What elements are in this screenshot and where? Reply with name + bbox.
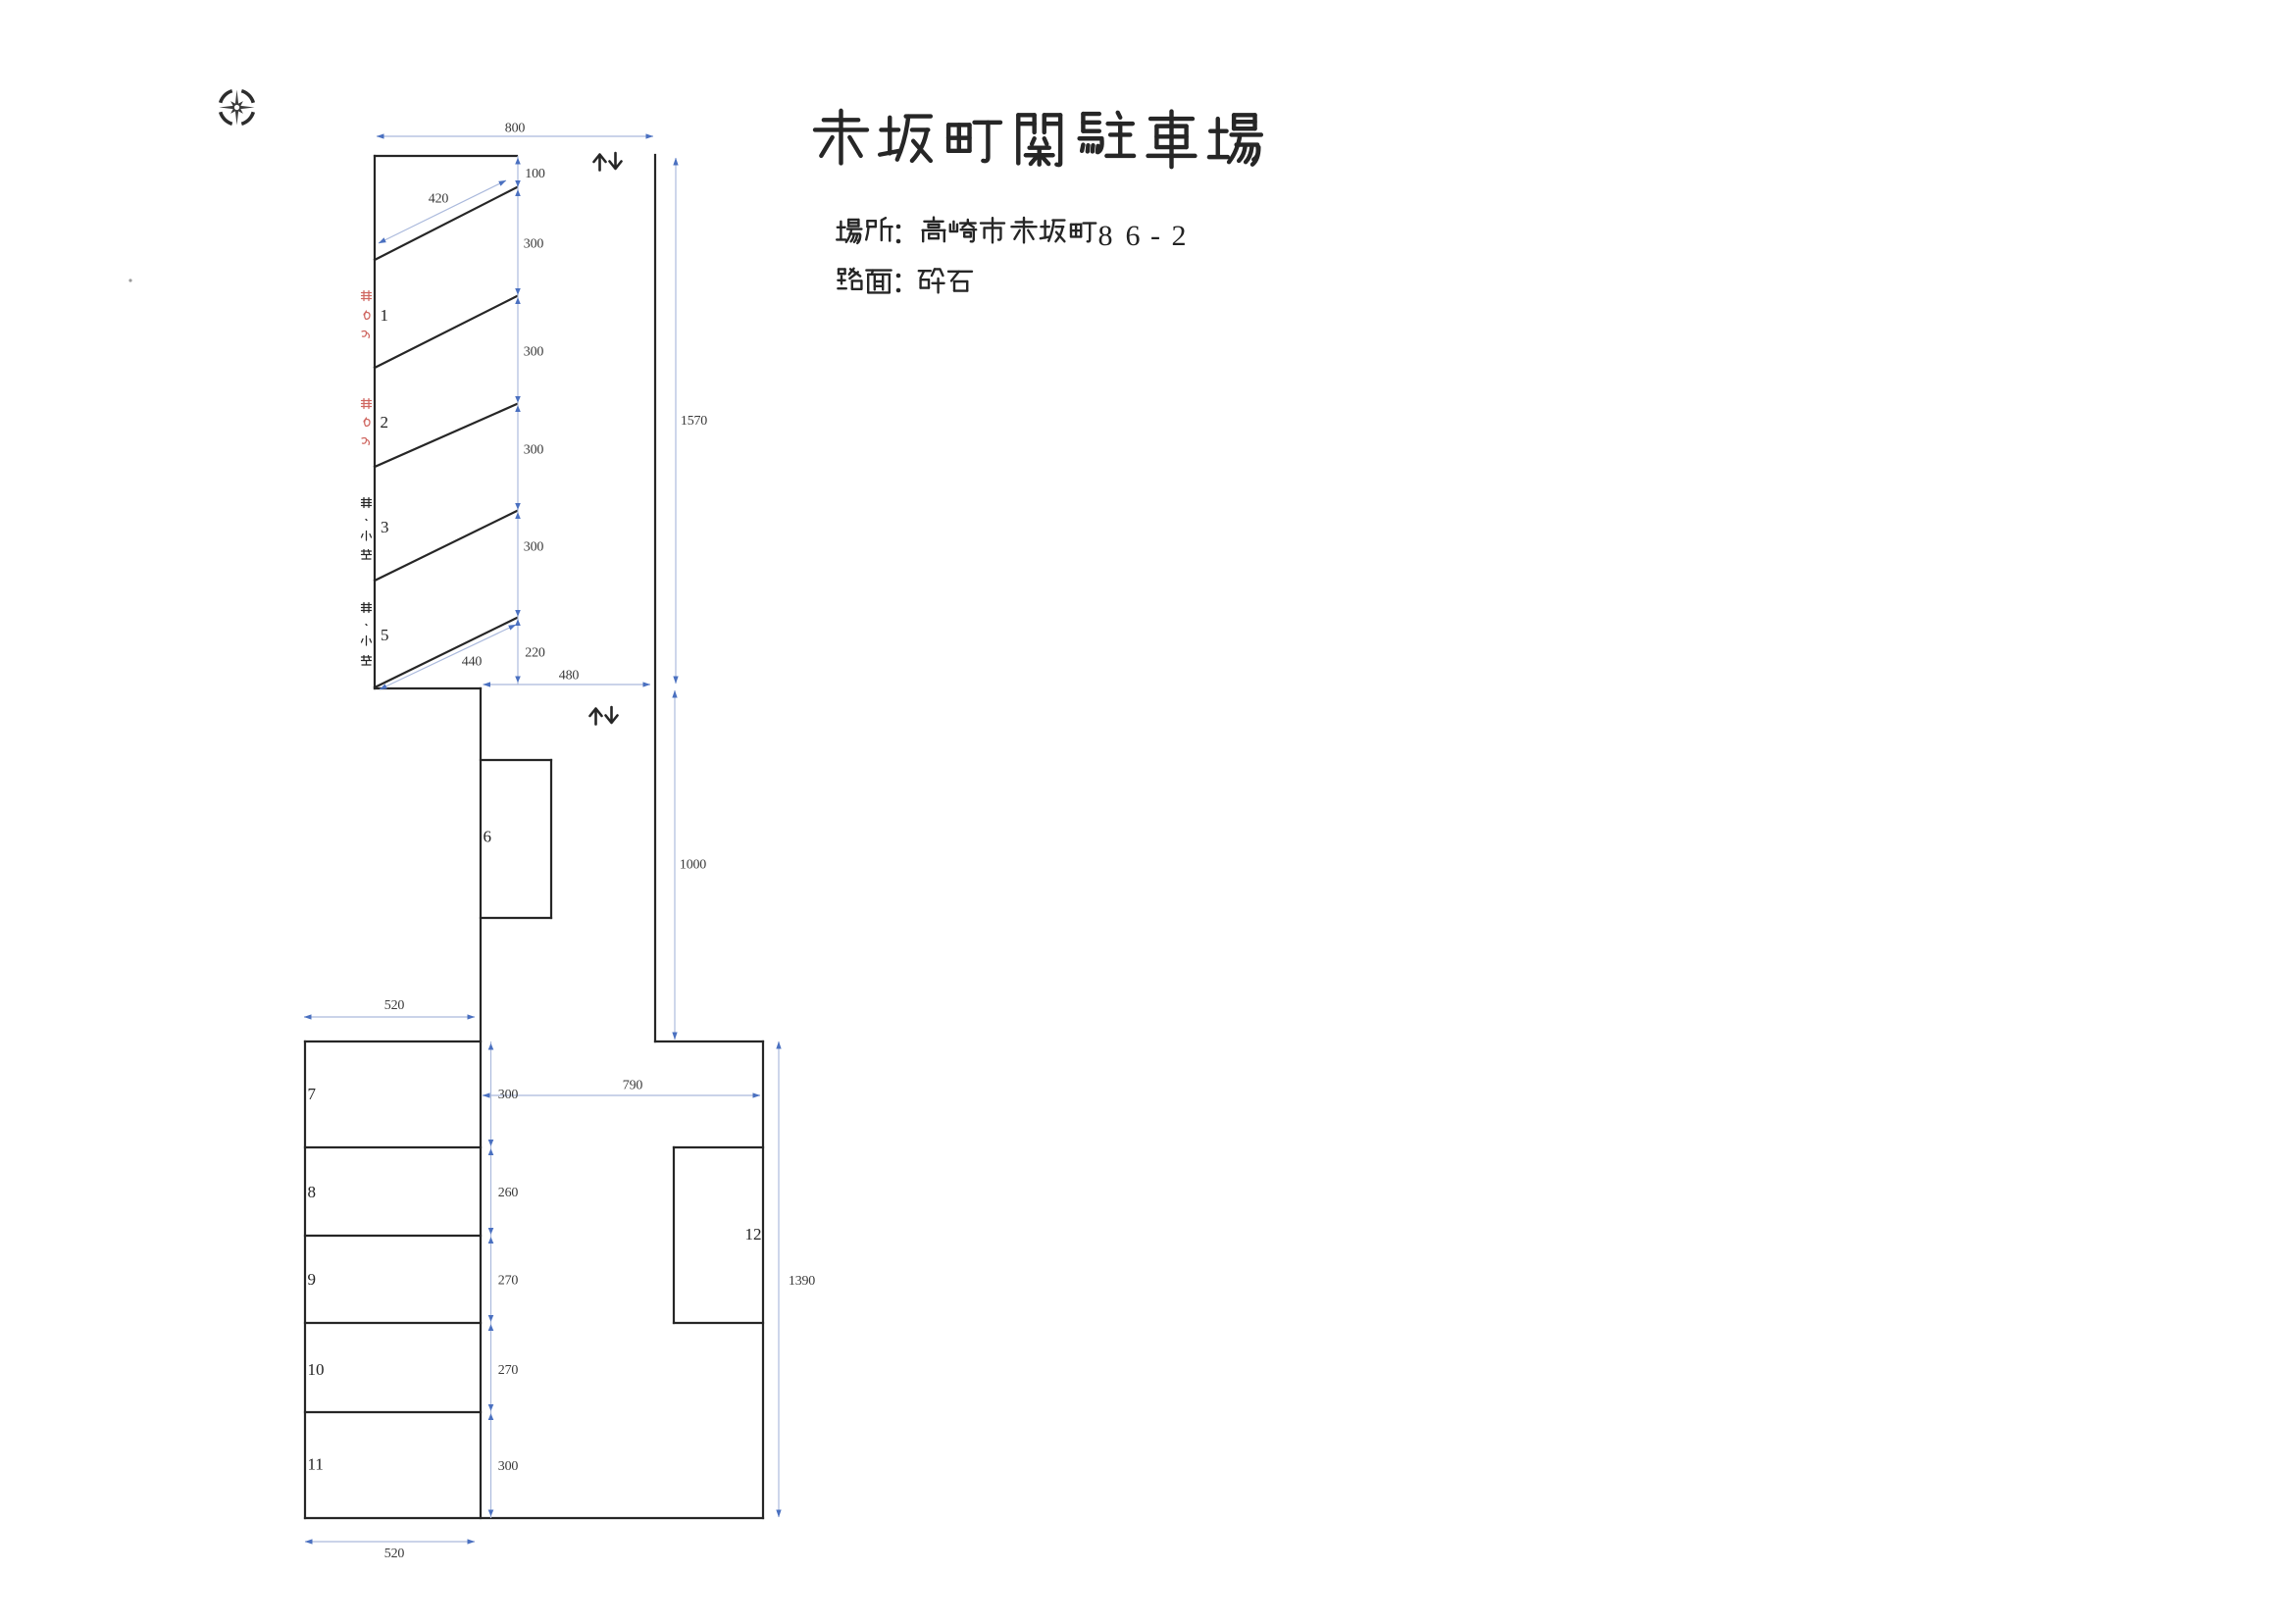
svg-text:11: 11 <box>308 1455 324 1474</box>
svg-text:300: 300 <box>524 345 544 360</box>
svg-text:260: 260 <box>498 1186 519 1200</box>
svg-text:800: 800 <box>505 122 526 136</box>
svg-text:300: 300 <box>524 443 544 458</box>
svg-text:520: 520 <box>384 1547 405 1561</box>
svg-text:420: 420 <box>429 192 449 207</box>
svg-text:7: 7 <box>308 1085 317 1103</box>
svg-text:1000: 1000 <box>680 858 706 873</box>
svg-text:6: 6 <box>1126 220 1141 252</box>
svg-text:-: - <box>1150 220 1160 252</box>
svg-text:270: 270 <box>498 1363 519 1378</box>
svg-text:100: 100 <box>525 167 545 181</box>
svg-text:5: 5 <box>381 626 389 644</box>
svg-text:6: 6 <box>484 828 492 846</box>
svg-text:12: 12 <box>745 1225 762 1243</box>
svg-text:480: 480 <box>559 669 580 684</box>
svg-text:790: 790 <box>623 1079 643 1093</box>
svg-text:1390: 1390 <box>789 1274 815 1289</box>
svg-text:270: 270 <box>498 1274 519 1289</box>
svg-text:440: 440 <box>462 655 483 670</box>
svg-text:1570: 1570 <box>681 414 707 429</box>
svg-text:9: 9 <box>308 1270 317 1289</box>
svg-text:1: 1 <box>381 306 389 325</box>
svg-text:300: 300 <box>524 540 544 555</box>
svg-text:300: 300 <box>524 237 544 252</box>
svg-text:8: 8 <box>1098 220 1113 252</box>
svg-text:10: 10 <box>308 1360 325 1379</box>
svg-text:220: 220 <box>525 646 545 661</box>
svg-text:300: 300 <box>498 1459 519 1474</box>
svg-text:520: 520 <box>384 998 405 1013</box>
svg-text:2: 2 <box>381 413 389 431</box>
svg-text:2: 2 <box>1172 220 1187 252</box>
svg-text:300: 300 <box>498 1088 519 1102</box>
svg-text:3: 3 <box>381 518 389 536</box>
svg-text:8: 8 <box>308 1183 317 1201</box>
